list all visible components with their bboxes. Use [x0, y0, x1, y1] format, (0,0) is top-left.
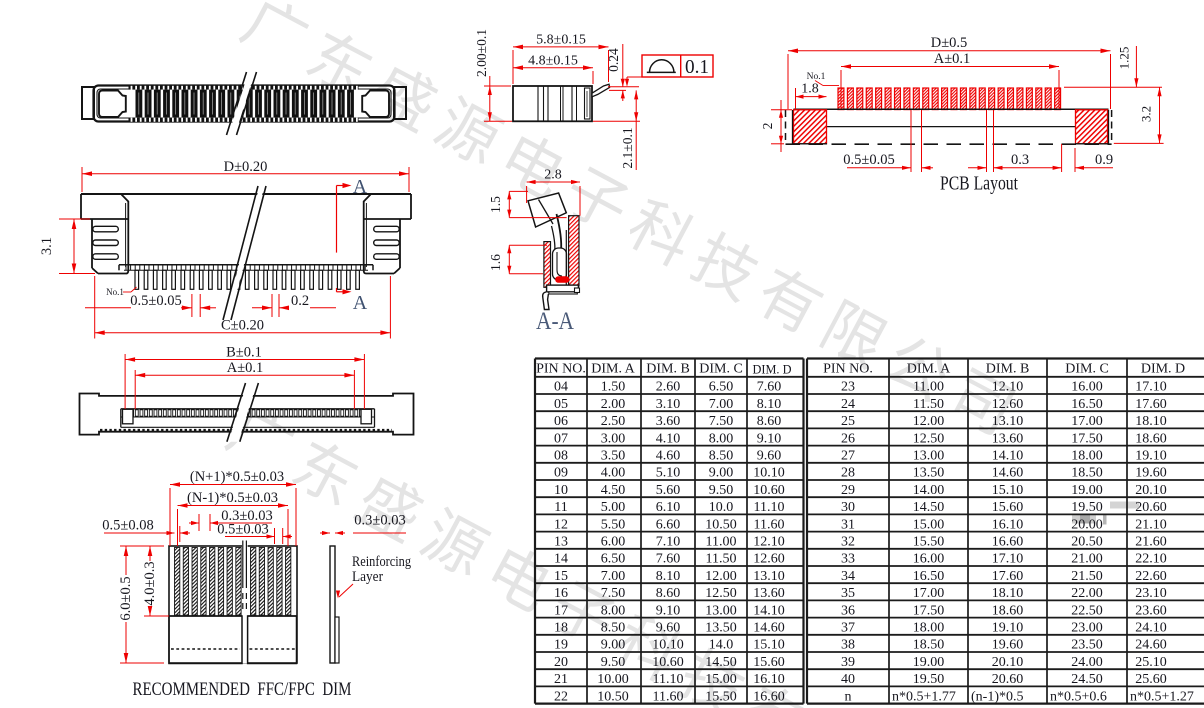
- svg-text:13: 13: [554, 535, 568, 550]
- svg-text:3.2: 3.2: [1139, 106, 1154, 122]
- svg-text:0.1: 0.1: [685, 56, 709, 78]
- svg-text:6.60: 6.60: [656, 517, 681, 532]
- svg-text:9.50: 9.50: [601, 655, 626, 670]
- svg-text:A±0.1: A±0.1: [227, 360, 264, 376]
- svg-text:17.10: 17.10: [992, 552, 1024, 567]
- svg-text:10.00: 10.00: [597, 672, 629, 687]
- svg-text:7.10: 7.10: [656, 535, 681, 550]
- svg-text:2.00: 2.00: [601, 397, 626, 412]
- svg-text:DIM. C: DIM. C: [1065, 361, 1109, 376]
- svg-text:21.60: 21.60: [1135, 535, 1167, 550]
- svg-text:A: A: [353, 176, 368, 198]
- svg-text:8.60: 8.60: [656, 586, 681, 601]
- svg-text:8.50: 8.50: [709, 449, 734, 464]
- svg-text:20.10: 20.10: [1135, 483, 1167, 498]
- svg-text:17.50: 17.50: [913, 603, 945, 618]
- svg-text:10.50: 10.50: [597, 689, 629, 704]
- svg-text:16.00: 16.00: [913, 552, 945, 567]
- svg-text:25.60: 25.60: [1135, 672, 1167, 687]
- svg-text:11.00: 11.00: [706, 535, 737, 550]
- svg-text:3.60: 3.60: [656, 414, 681, 429]
- svg-text:17.10: 17.10: [1135, 380, 1167, 395]
- svg-text:18.60: 18.60: [1135, 431, 1167, 446]
- svg-text:22.50: 22.50: [1071, 603, 1103, 618]
- svg-text:5.60: 5.60: [656, 483, 681, 498]
- svg-text:4.00: 4.00: [601, 466, 626, 481]
- svg-text:8.10: 8.10: [757, 397, 782, 412]
- svg-text:38: 38: [841, 638, 855, 653]
- svg-text:6.00: 6.00: [601, 535, 626, 550]
- svg-text:10: 10: [554, 483, 568, 498]
- svg-text:16: 16: [554, 586, 568, 601]
- svg-text:18.50: 18.50: [1071, 466, 1103, 481]
- svg-text:5.50: 5.50: [601, 517, 626, 532]
- svg-text:(N-1)*0.5±0.03: (N-1)*0.5±0.03: [187, 490, 278, 506]
- svg-text:24.10: 24.10: [1135, 621, 1167, 636]
- svg-text:19.60: 19.60: [992, 638, 1024, 653]
- svg-text:10.60: 10.60: [652, 655, 684, 670]
- svg-text:Layer: Layer: [352, 569, 383, 585]
- svg-text:5.00: 5.00: [601, 500, 626, 515]
- svg-text:1.6: 1.6: [488, 254, 503, 271]
- svg-text:13.60: 13.60: [753, 586, 785, 601]
- svg-text:22: 22: [554, 689, 568, 704]
- svg-text:19.10: 19.10: [1135, 449, 1167, 464]
- svg-text:22.10: 22.10: [1135, 552, 1167, 567]
- svg-text:1.50: 1.50: [601, 380, 626, 395]
- svg-text:18.10: 18.10: [992, 586, 1024, 601]
- svg-text:9.50: 9.50: [709, 483, 734, 498]
- svg-text:A: A: [353, 292, 368, 314]
- svg-text:24.50: 24.50: [1071, 672, 1103, 687]
- svg-text:20.60: 20.60: [992, 672, 1024, 687]
- svg-text:21.00: 21.00: [1071, 552, 1103, 567]
- svg-text:14.50: 14.50: [705, 655, 737, 670]
- svg-text:A±0.1: A±0.1: [934, 51, 971, 67]
- svg-text:22.00: 22.00: [1071, 586, 1103, 601]
- svg-text:09: 09: [554, 466, 568, 481]
- svg-text:2.50: 2.50: [601, 414, 626, 429]
- svg-text:12.60: 12.60: [992, 397, 1024, 412]
- svg-text:3.00: 3.00: [601, 431, 626, 446]
- svg-text:16.00: 16.00: [1071, 380, 1103, 395]
- svg-text:3.1: 3.1: [39, 237, 55, 255]
- svg-text:2: 2: [760, 123, 775, 130]
- svg-text:10.50: 10.50: [705, 517, 737, 532]
- svg-text:40: 40: [841, 672, 855, 687]
- svg-text:9.60: 9.60: [656, 621, 681, 636]
- svg-text:23.00: 23.00: [1071, 621, 1103, 636]
- svg-text:30: 30: [841, 500, 855, 515]
- svg-text:39: 39: [841, 655, 855, 670]
- svg-text:D±0.5: D±0.5: [931, 35, 968, 51]
- svg-text:13.50: 13.50: [913, 466, 945, 481]
- svg-text:17.00: 17.00: [1071, 414, 1103, 429]
- svg-text:7.50: 7.50: [709, 414, 734, 429]
- svg-text:17.60: 17.60: [1135, 397, 1167, 412]
- svg-text:7.60: 7.60: [757, 380, 782, 395]
- svg-text:14.10: 14.10: [992, 449, 1024, 464]
- svg-text:12.50: 12.50: [705, 586, 737, 601]
- svg-text:8.50: 8.50: [601, 621, 626, 636]
- svg-text:33: 33: [841, 552, 855, 567]
- svg-text:9.00: 9.00: [601, 638, 626, 653]
- svg-text:25: 25: [841, 414, 855, 429]
- svg-text:20.60: 20.60: [1135, 500, 1167, 515]
- svg-text:6.50: 6.50: [601, 552, 626, 567]
- svg-text:11.50: 11.50: [706, 552, 737, 567]
- svg-text:06: 06: [554, 414, 568, 429]
- svg-text:0.24: 0.24: [606, 48, 621, 72]
- svg-text:16.60: 16.60: [753, 689, 785, 704]
- svg-text:4.0±0.3: 4.0±0.3: [142, 561, 158, 605]
- svg-text:34: 34: [841, 569, 855, 584]
- svg-text:08: 08: [554, 449, 568, 464]
- svg-text:PCB Layout: PCB Layout: [940, 174, 1018, 195]
- svg-text:n*0.5+1.27: n*0.5+1.27: [1130, 689, 1194, 704]
- svg-text:19.60: 19.60: [1135, 466, 1167, 481]
- svg-text:12.50: 12.50: [913, 431, 945, 446]
- svg-text:No.1: No.1: [807, 72, 826, 82]
- svg-text:1.5: 1.5: [488, 196, 503, 213]
- svg-text:11.10: 11.10: [754, 500, 785, 515]
- svg-text:16.10: 16.10: [753, 672, 785, 687]
- svg-text:32: 32: [841, 535, 855, 550]
- svg-text:12.10: 12.10: [992, 380, 1024, 395]
- svg-text:15.60: 15.60: [753, 655, 785, 670]
- svg-text:11.60: 11.60: [653, 689, 684, 704]
- svg-text:19.00: 19.00: [1071, 483, 1103, 498]
- svg-text:6.50: 6.50: [709, 380, 734, 395]
- svg-text:9.60: 9.60: [757, 449, 782, 464]
- svg-text:26: 26: [841, 431, 855, 446]
- svg-text:(n-1)*0.5: (n-1)*0.5: [971, 689, 1024, 704]
- svg-text:3.10: 3.10: [656, 397, 681, 412]
- svg-text:4.8±0.15: 4.8±0.15: [528, 54, 578, 69]
- svg-text:11: 11: [554, 500, 567, 515]
- svg-text:n*0.5+1.77: n*0.5+1.77: [892, 689, 956, 704]
- svg-text:20.50: 20.50: [1071, 535, 1103, 550]
- svg-text:12: 12: [554, 517, 568, 532]
- svg-text:24.00: 24.00: [1071, 655, 1103, 670]
- svg-text:19.00: 19.00: [913, 655, 945, 670]
- svg-text:13.10: 13.10: [753, 569, 785, 584]
- svg-text:14.60: 14.60: [753, 621, 785, 636]
- svg-text:18.00: 18.00: [913, 621, 945, 636]
- svg-text:A-A: A-A: [536, 308, 574, 335]
- svg-text:DIM. A: DIM. A: [591, 361, 635, 376]
- svg-text:7.50: 7.50: [601, 586, 626, 601]
- svg-text:36: 36: [841, 603, 855, 618]
- svg-text:23.50: 23.50: [1071, 638, 1103, 653]
- svg-text:13.00: 13.00: [705, 603, 737, 618]
- svg-text:D±0.20: D±0.20: [224, 159, 268, 175]
- svg-text:PIN NO.: PIN NO.: [823, 361, 873, 376]
- svg-text:n*0.5+0.6: n*0.5+0.6: [1050, 689, 1107, 704]
- svg-text:14: 14: [554, 552, 568, 567]
- svg-text:C±0.20: C±0.20: [221, 318, 264, 334]
- svg-text:24.60: 24.60: [1135, 638, 1167, 653]
- svg-text:2.60: 2.60: [656, 380, 681, 395]
- svg-text:19.50: 19.50: [913, 672, 945, 687]
- svg-text:10.0: 10.0: [709, 500, 734, 515]
- svg-text:16.50: 16.50: [913, 569, 945, 584]
- svg-text:n: n: [845, 689, 852, 704]
- svg-text:5.8±0.15: 5.8±0.15: [536, 33, 586, 48]
- svg-text:2.1±0.1: 2.1±0.1: [620, 127, 635, 168]
- svg-text:8.00: 8.00: [601, 603, 626, 618]
- svg-text:10.10: 10.10: [753, 466, 785, 481]
- svg-text:2.8: 2.8: [544, 168, 562, 183]
- svg-text:14.10: 14.10: [753, 603, 785, 618]
- svg-text:DIM. D: DIM. D: [753, 362, 792, 376]
- svg-text:28: 28: [841, 466, 855, 481]
- svg-text:1.25: 1.25: [1117, 47, 1132, 70]
- svg-text:15.50: 15.50: [705, 689, 737, 704]
- svg-text:13.50: 13.50: [705, 621, 737, 636]
- svg-text:DIM. B: DIM. B: [986, 361, 1030, 376]
- svg-text:16.50: 16.50: [1071, 397, 1103, 412]
- svg-text:14.50: 14.50: [913, 500, 945, 515]
- svg-text:11.10: 11.10: [653, 672, 684, 687]
- svg-text:RECOMMENDED FFC/FPC DIM: RECOMMENDED FFC/FPC DIM: [133, 679, 352, 700]
- svg-text:19.50: 19.50: [1071, 500, 1103, 515]
- svg-text:11.00: 11.00: [913, 380, 944, 395]
- svg-text:0.9: 0.9: [1095, 152, 1113, 168]
- svg-text:23.10: 23.10: [1135, 586, 1167, 601]
- svg-text:20: 20: [554, 655, 568, 670]
- svg-text:14.60: 14.60: [992, 466, 1024, 481]
- svg-text:4.60: 4.60: [656, 449, 681, 464]
- svg-text:22.60: 22.60: [1135, 569, 1167, 584]
- svg-text:05: 05: [554, 397, 568, 412]
- svg-text:9.00: 9.00: [709, 466, 734, 481]
- svg-text:7.60: 7.60: [656, 552, 681, 567]
- svg-text:DIM. D: DIM. D: [1141, 361, 1185, 376]
- svg-text:0.2: 0.2: [291, 293, 309, 309]
- svg-text:Reinforcing: Reinforcing: [352, 554, 411, 570]
- svg-text:15.00: 15.00: [705, 672, 737, 687]
- svg-text:B±0.1: B±0.1: [226, 345, 262, 361]
- svg-text:15.10: 15.10: [992, 483, 1024, 498]
- svg-text:8.10: 8.10: [656, 569, 681, 584]
- svg-text:12.60: 12.60: [753, 552, 785, 567]
- svg-text:18.00: 18.00: [1071, 449, 1103, 464]
- svg-text:14.00: 14.00: [913, 483, 945, 498]
- svg-text:20.10: 20.10: [992, 655, 1024, 670]
- svg-text:25.10: 25.10: [1135, 655, 1167, 670]
- svg-text:15: 15: [554, 569, 568, 584]
- svg-text:PIN NO.: PIN NO.: [536, 361, 586, 376]
- svg-text:DIM. C: DIM. C: [699, 361, 743, 376]
- svg-text:27: 27: [841, 449, 855, 464]
- svg-text:20.00: 20.00: [1071, 517, 1103, 532]
- svg-text:3.50: 3.50: [601, 449, 626, 464]
- svg-text:0.5±0.03: 0.5±0.03: [217, 522, 268, 538]
- svg-text:19: 19: [554, 638, 568, 653]
- svg-text:31: 31: [841, 517, 855, 532]
- svg-text:5.10: 5.10: [656, 466, 681, 481]
- svg-text:2.00±0.1: 2.00±0.1: [474, 29, 489, 77]
- svg-text:19.10: 19.10: [992, 621, 1024, 636]
- svg-text:12.00: 12.00: [705, 569, 737, 584]
- svg-text:18.50: 18.50: [913, 638, 945, 653]
- svg-text:9.10: 9.10: [757, 431, 782, 446]
- svg-text:10.60: 10.60: [753, 483, 785, 498]
- svg-text:DIM. A: DIM. A: [907, 361, 951, 376]
- svg-text:10.10: 10.10: [652, 638, 684, 653]
- svg-text:21: 21: [554, 672, 568, 687]
- svg-text:16.10: 16.10: [992, 517, 1024, 532]
- svg-text:13.00: 13.00: [913, 449, 945, 464]
- svg-text:37: 37: [841, 621, 855, 636]
- svg-text:12.10: 12.10: [753, 535, 785, 550]
- svg-text:0.5±0.05: 0.5±0.05: [130, 293, 181, 309]
- svg-text:18.10: 18.10: [1135, 414, 1167, 429]
- svg-text:23.60: 23.60: [1135, 603, 1167, 618]
- svg-text:18.60: 18.60: [992, 603, 1024, 618]
- svg-text:29: 29: [841, 483, 855, 498]
- svg-text:07: 07: [554, 431, 568, 446]
- svg-text:1.8: 1.8: [801, 82, 819, 97]
- svg-text:4.50: 4.50: [601, 483, 626, 498]
- svg-text:18: 18: [554, 621, 568, 636]
- svg-text:8.00: 8.00: [709, 431, 734, 446]
- svg-text:16.60: 16.60: [992, 535, 1024, 550]
- svg-text:0.5±0.08: 0.5±0.08: [102, 518, 153, 534]
- svg-text:15.50: 15.50: [913, 535, 945, 550]
- svg-text:15.00: 15.00: [913, 517, 945, 532]
- svg-text:21.10: 21.10: [1135, 517, 1167, 532]
- svg-text:17.50: 17.50: [1071, 431, 1103, 446]
- svg-text:13.60: 13.60: [992, 431, 1024, 446]
- svg-text:23: 23: [841, 380, 855, 395]
- svg-text:35: 35: [841, 586, 855, 601]
- svg-text:No.1: No.1: [106, 287, 124, 297]
- svg-text:11.60: 11.60: [754, 517, 785, 532]
- svg-text:0.5±0.05: 0.5±0.05: [843, 152, 894, 168]
- svg-text:6.0±0.5: 6.0±0.5: [118, 576, 134, 620]
- svg-text:17: 17: [554, 603, 568, 618]
- svg-text:12.00: 12.00: [913, 414, 945, 429]
- svg-text:17.00: 17.00: [913, 586, 945, 601]
- svg-text:0.3±0.03: 0.3±0.03: [354, 513, 405, 529]
- svg-text:9.10: 9.10: [656, 603, 681, 618]
- svg-text:15.10: 15.10: [753, 638, 785, 653]
- svg-text:8.60: 8.60: [757, 414, 782, 429]
- svg-text:17.60: 17.60: [992, 569, 1024, 584]
- svg-text:(N+1)*0.5±0.03: (N+1)*0.5±0.03: [190, 469, 284, 485]
- svg-text:4.10: 4.10: [656, 431, 681, 446]
- svg-text:0.3: 0.3: [1011, 152, 1029, 168]
- svg-text:14.0: 14.0: [709, 638, 734, 653]
- svg-text:11.50: 11.50: [913, 397, 944, 412]
- svg-text:13.10: 13.10: [992, 414, 1024, 429]
- svg-text:04: 04: [554, 380, 568, 395]
- svg-text:21.50: 21.50: [1071, 569, 1103, 584]
- svg-text:15.60: 15.60: [992, 500, 1024, 515]
- svg-text:7.00: 7.00: [601, 569, 626, 584]
- svg-text:7.00: 7.00: [709, 397, 734, 412]
- svg-text:DIM. B: DIM. B: [646, 361, 690, 376]
- svg-text:24: 24: [841, 397, 855, 412]
- svg-text:6.10: 6.10: [656, 500, 681, 515]
